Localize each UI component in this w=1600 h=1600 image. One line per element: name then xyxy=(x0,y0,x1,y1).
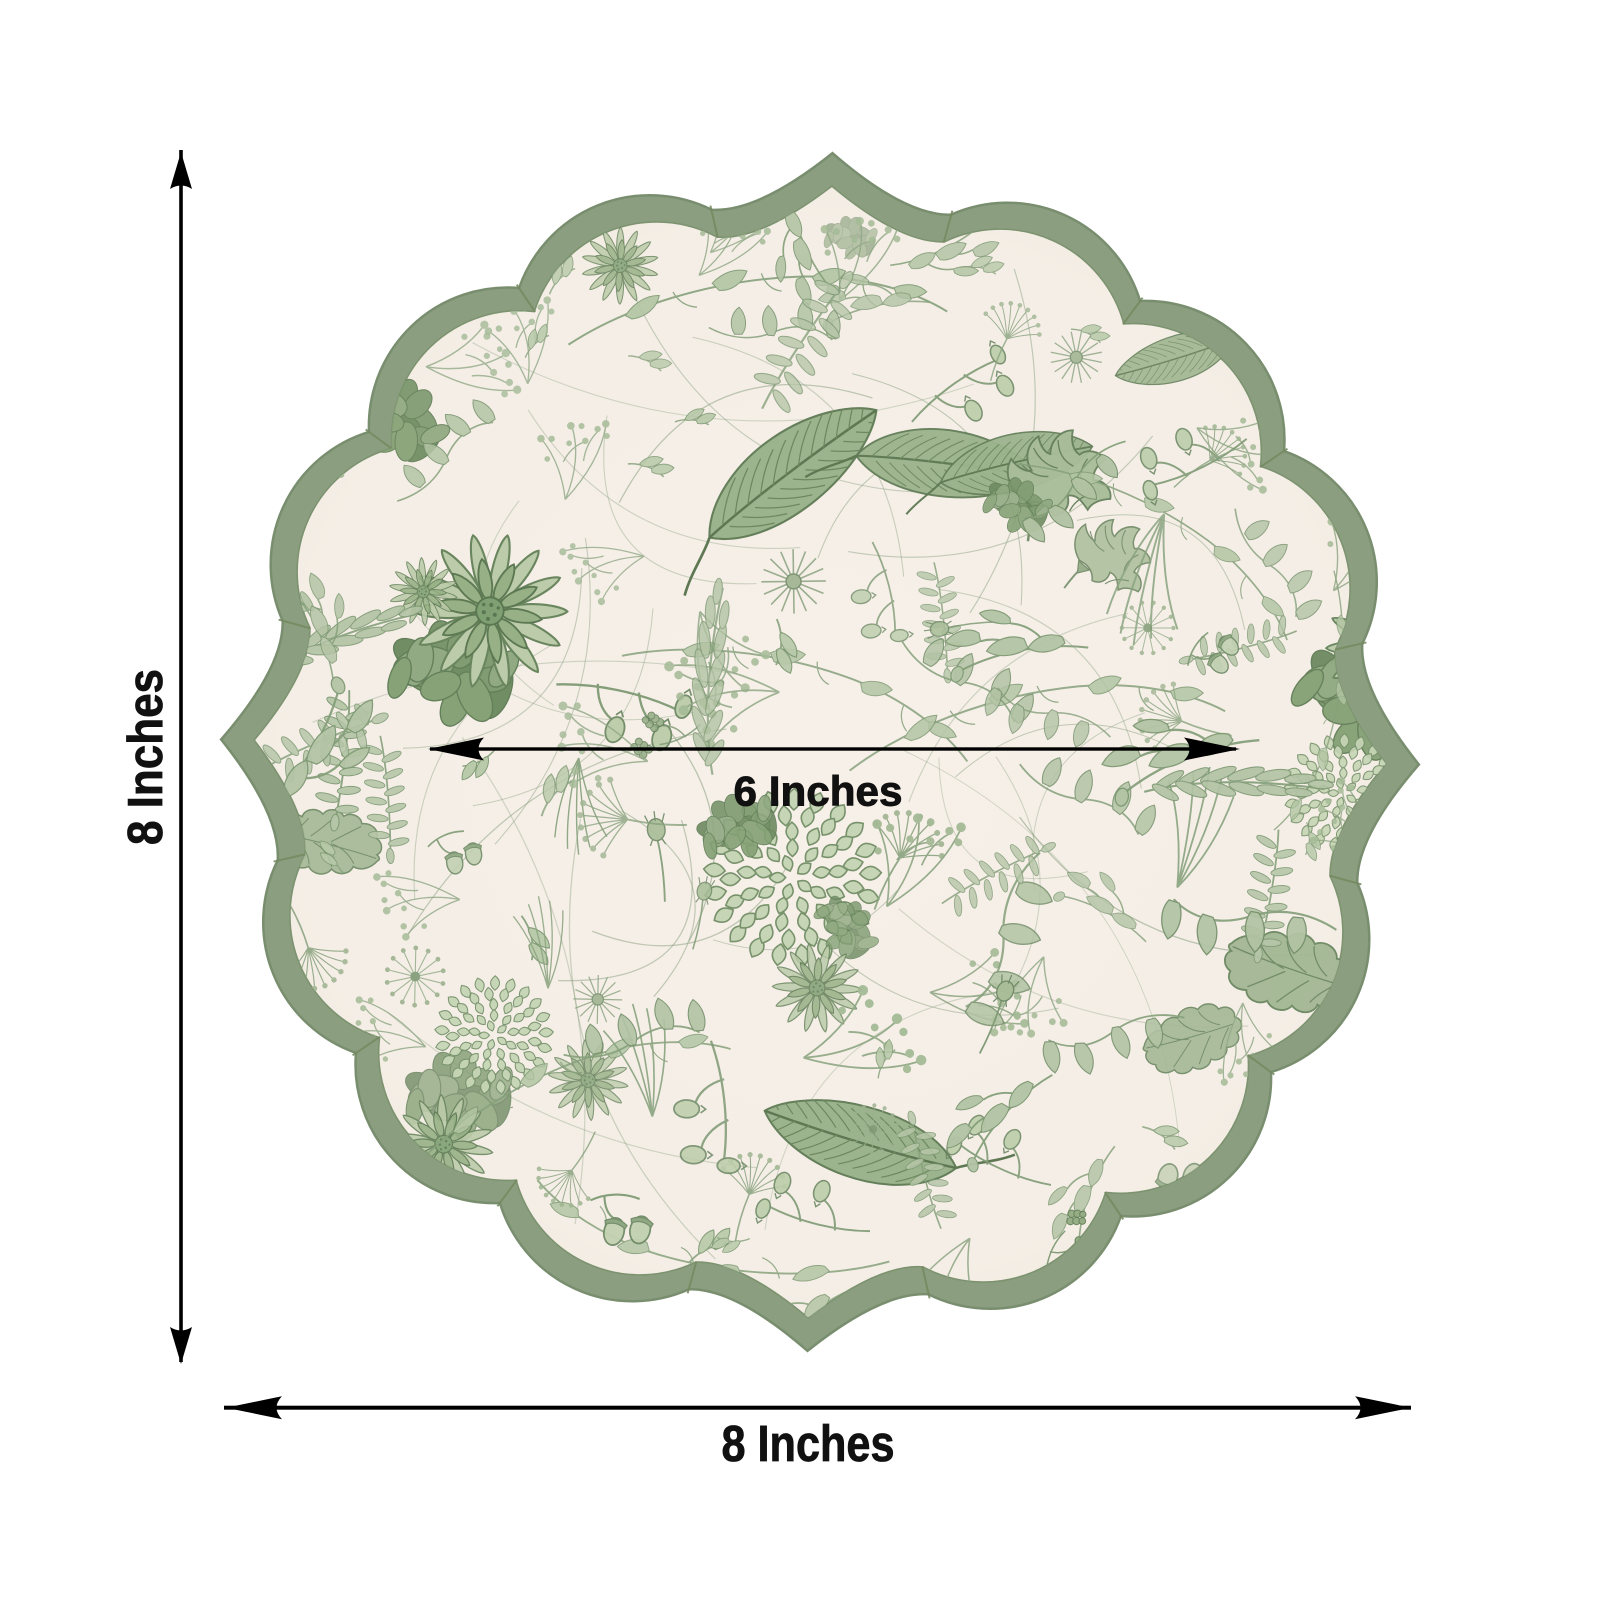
svg-text:8 Inches: 8 Inches xyxy=(722,1415,895,1472)
svg-text:8 Inches: 8 Inches xyxy=(119,669,173,845)
svg-text:6 Inches: 6 Inches xyxy=(734,768,903,815)
